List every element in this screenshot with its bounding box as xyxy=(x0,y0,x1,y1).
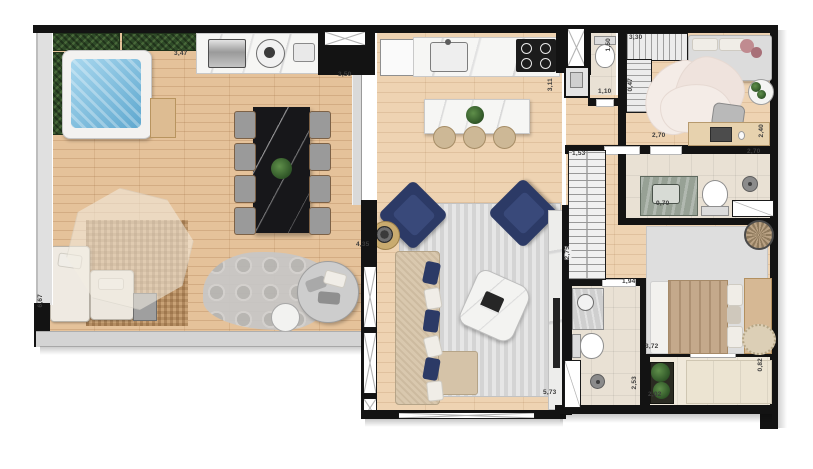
dim-label: 0,82 xyxy=(758,358,765,371)
shadow xyxy=(560,414,772,423)
shower-head-icon xyxy=(742,176,758,192)
toilet-icon xyxy=(580,333,604,359)
washer-icon xyxy=(570,72,583,88)
mouse-icon xyxy=(738,131,745,140)
dim-label: 0,70 xyxy=(656,201,669,208)
toilet-icon xyxy=(702,180,728,208)
dining-chair-icon xyxy=(234,175,256,203)
dim-label: 2,70 xyxy=(747,149,760,156)
dim-label: 5,73 xyxy=(543,390,556,397)
wardrobe-icon xyxy=(568,150,606,280)
dim-label: 1,53 xyxy=(572,151,585,158)
shower-head-icon xyxy=(590,374,605,389)
floor-plan: 3,47 3,50 1,50 3,30 0,47 1,10 3,11 2,70 … xyxy=(0,0,813,469)
dim-label: 6,67 xyxy=(38,294,45,307)
window-icon xyxy=(363,332,377,394)
burner-icon xyxy=(540,58,551,69)
sofa-pillow xyxy=(423,309,441,333)
shadow xyxy=(40,346,362,355)
vanity-sink-icon xyxy=(577,294,594,311)
sliding-glass-door-icon xyxy=(352,75,362,205)
dining-chair-icon xyxy=(234,207,256,235)
fridge-icon xyxy=(380,39,415,76)
dining-chair-icon xyxy=(234,143,256,171)
gold-side-table-top xyxy=(376,226,393,243)
bar-stool-icon xyxy=(463,126,486,149)
shadow xyxy=(778,30,787,428)
dining-chair-icon xyxy=(309,143,331,171)
sofa-pillow xyxy=(423,287,442,310)
bed-pillow xyxy=(727,326,743,348)
accent-pillow xyxy=(751,47,762,58)
dim-label: 3,11 xyxy=(548,78,555,91)
door-opening xyxy=(650,146,682,155)
plant-icon xyxy=(757,90,766,99)
hedge-planter-icon xyxy=(122,33,198,51)
door-opening xyxy=(596,99,614,107)
bed-icon xyxy=(668,280,728,354)
kitchen-sink-icon xyxy=(430,42,468,72)
dim-label: 3,50 xyxy=(338,72,351,79)
bed-pillow xyxy=(727,284,743,306)
dim-label: 2,75 xyxy=(565,246,572,259)
burner-icon xyxy=(521,43,532,54)
wall-hall-bath1 xyxy=(618,154,626,218)
dining-chair-icon xyxy=(309,175,331,203)
bar-stool-icon xyxy=(433,126,456,149)
tv-icon xyxy=(553,298,560,368)
dim-label: 1,94 xyxy=(622,279,635,286)
shower-glass-icon xyxy=(564,360,581,408)
sofa-pillow xyxy=(426,380,444,402)
dim-label: 2,02 xyxy=(648,392,661,399)
dim-label: 1,10 xyxy=(598,89,611,96)
burner-icon xyxy=(521,58,532,69)
window-icon xyxy=(363,266,377,328)
side-table-icon xyxy=(271,303,300,332)
deck-bench-icon xyxy=(150,98,176,138)
bar-stool-icon xyxy=(493,126,516,149)
plant-icon xyxy=(651,363,670,382)
dim-label: 3,72 xyxy=(645,344,658,351)
sofa-chaise-icon xyxy=(438,351,478,395)
dim-label: 0,47 xyxy=(628,78,635,91)
dining-chair-icon xyxy=(234,111,256,139)
bed-pillow xyxy=(692,38,718,51)
faucet-icon xyxy=(445,39,451,45)
terrace-edge-band xyxy=(36,331,362,347)
dim-label: 3,30 xyxy=(629,35,642,42)
dim-label: 4,35 xyxy=(356,242,369,249)
laptop-icon xyxy=(710,127,732,142)
hedge-planter-icon xyxy=(46,33,120,51)
dining-chair-icon xyxy=(309,207,331,235)
wall-bottom-right xyxy=(555,405,778,414)
dim-label: 2,53 xyxy=(632,376,639,389)
dim-label: 1,50 xyxy=(606,38,613,51)
dim-label: 2,40 xyxy=(759,124,766,137)
burner-icon xyxy=(540,43,551,54)
dining-chair-icon xyxy=(309,111,331,139)
daybed-cushion xyxy=(318,291,341,305)
round-rug-icon xyxy=(742,324,776,355)
basket-icon xyxy=(744,220,774,250)
wall-bedroom2-left xyxy=(618,25,626,145)
toilet-tank xyxy=(701,206,729,216)
outdoor-sink-icon xyxy=(293,43,315,62)
shadow xyxy=(365,419,563,427)
bbq-grill-icon xyxy=(208,39,246,68)
bed-pillow xyxy=(727,306,741,324)
terrace-parapet xyxy=(36,33,53,305)
wall-top xyxy=(33,25,778,33)
round-burner-center xyxy=(264,47,275,58)
window-icon xyxy=(324,31,366,46)
shower-glass-icon xyxy=(732,200,774,217)
dim-label: 2,70 xyxy=(652,133,665,140)
jacuzzi-water xyxy=(71,59,141,128)
window-icon xyxy=(398,412,535,419)
table-plant-icon xyxy=(271,158,292,179)
island-plant-icon xyxy=(466,106,484,124)
dim-label: 3,47 xyxy=(174,51,187,58)
